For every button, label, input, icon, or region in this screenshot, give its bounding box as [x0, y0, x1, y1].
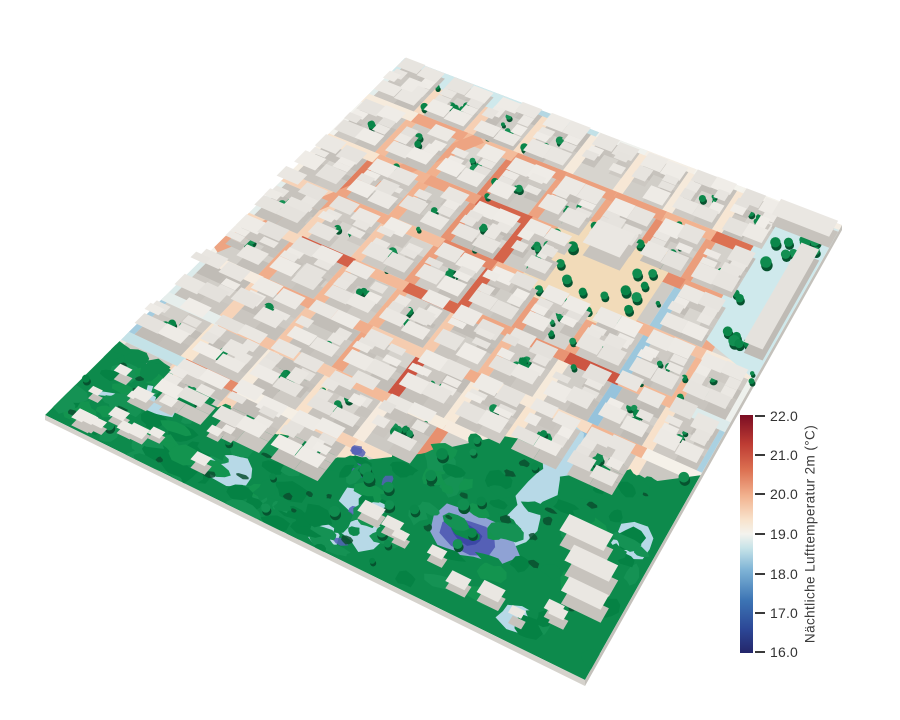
city-3d-model [0, 0, 900, 720]
urban-heat-3d-figure: 22.0 21.0 20.0 19.0 18.0 17.0 16.0 Nächt… [0, 0, 900, 720]
